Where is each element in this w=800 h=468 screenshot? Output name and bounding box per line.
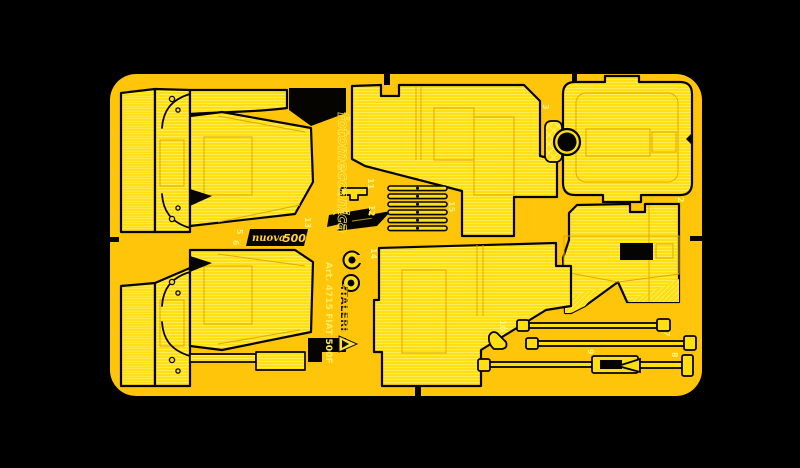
part-number: 5 xyxy=(235,229,244,235)
part-number: 2 xyxy=(676,197,685,203)
part-number: 12 xyxy=(367,205,376,216)
part-number: 15 xyxy=(447,201,456,213)
part-number: 10 xyxy=(498,320,507,332)
nuova-script-text: nuova xyxy=(252,233,286,244)
part-13-nuova-500-badge: nuova 500 xyxy=(246,229,308,246)
round-hole xyxy=(558,133,577,152)
fotomeccanica-etch-text: fotomeccanica xyxy=(334,112,352,234)
part-1-sunroof-panel-top-right xyxy=(554,76,692,202)
part-number: 7 xyxy=(662,331,671,337)
part-number: 6 xyxy=(231,240,240,246)
rectangular-hole xyxy=(620,243,653,260)
seat-rail xyxy=(190,354,256,362)
part-number: 3 xyxy=(541,104,550,110)
photo-etched-fret-photo: FIAT nuova 500 xyxy=(0,0,800,468)
fret-scene: FIAT nuova 500 xyxy=(0,0,800,468)
buckle-slot xyxy=(600,360,622,369)
nuova-500-text: 500 xyxy=(283,232,306,245)
part-number: 13 xyxy=(303,217,312,228)
part-number: 14 xyxy=(369,248,378,260)
part-number: 11 xyxy=(366,178,375,190)
art-number-etch-text: Art. 4715 FIAT 500F xyxy=(323,262,333,364)
part-number: 8 xyxy=(670,352,679,358)
part-number: 9 xyxy=(586,349,595,355)
seat-rail-step xyxy=(256,352,305,370)
